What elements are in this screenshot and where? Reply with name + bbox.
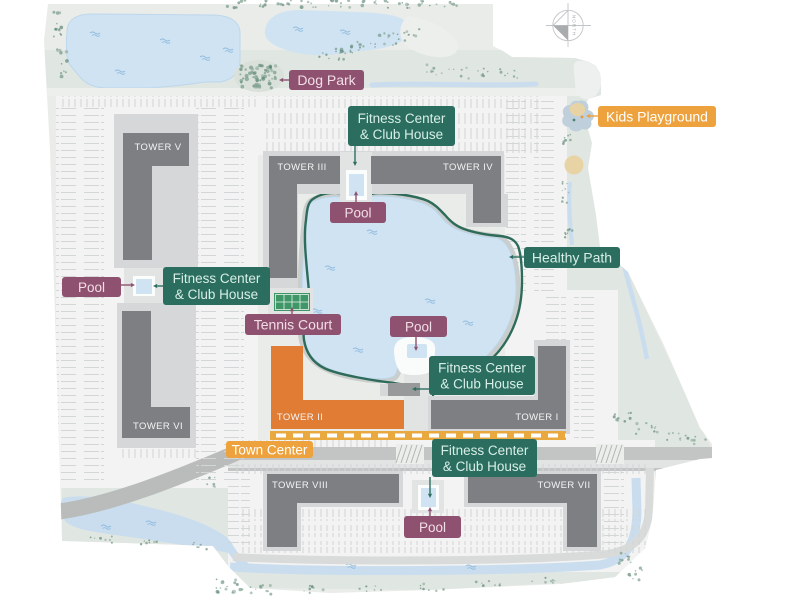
- svg-text:Pool: Pool: [405, 319, 432, 334]
- svg-text:& Club House: & Club House: [443, 459, 526, 474]
- svg-text:Fitness Center: Fitness Center: [173, 271, 261, 286]
- svg-text:TOWER VIII: TOWER VIII: [272, 480, 328, 491]
- svg-text:Pool: Pool: [419, 520, 446, 535]
- svg-text:Healthy Path: Healthy Path: [532, 250, 612, 266]
- svg-text:TOWER VII: TOWER VII: [537, 480, 590, 491]
- svg-text:Town Center: Town Center: [232, 442, 308, 457]
- svg-text:& Club House: & Club House: [360, 127, 443, 142]
- svg-text:Fitness Center: Fitness Center: [438, 360, 526, 375]
- svg-text:& Club House: & Club House: [440, 376, 523, 391]
- svg-text:Kids Playground: Kids Playground: [606, 109, 708, 125]
- svg-text:& Club House: & Club House: [175, 287, 258, 302]
- svg-text:NORTH: NORTH: [572, 15, 577, 36]
- svg-text:Pool: Pool: [344, 205, 371, 220]
- svg-text:Tennis Court: Tennis Court: [254, 317, 333, 333]
- svg-text:Fitness Center: Fitness Center: [441, 443, 529, 458]
- svg-text:TOWER II: TOWER II: [277, 412, 323, 423]
- svg-text:Fitness Center: Fitness Center: [358, 111, 446, 126]
- svg-text:TOWER III: TOWER III: [277, 162, 326, 173]
- svg-text:TOWER IV: TOWER IV: [443, 162, 493, 173]
- svg-text:Dog Park: Dog Park: [297, 72, 356, 88]
- svg-text:TOWER VI: TOWER VI: [133, 421, 183, 432]
- svg-text:TOWER I: TOWER I: [515, 412, 558, 423]
- svg-text:TOWER V: TOWER V: [135, 142, 182, 153]
- svg-text:Pool: Pool: [78, 280, 105, 295]
